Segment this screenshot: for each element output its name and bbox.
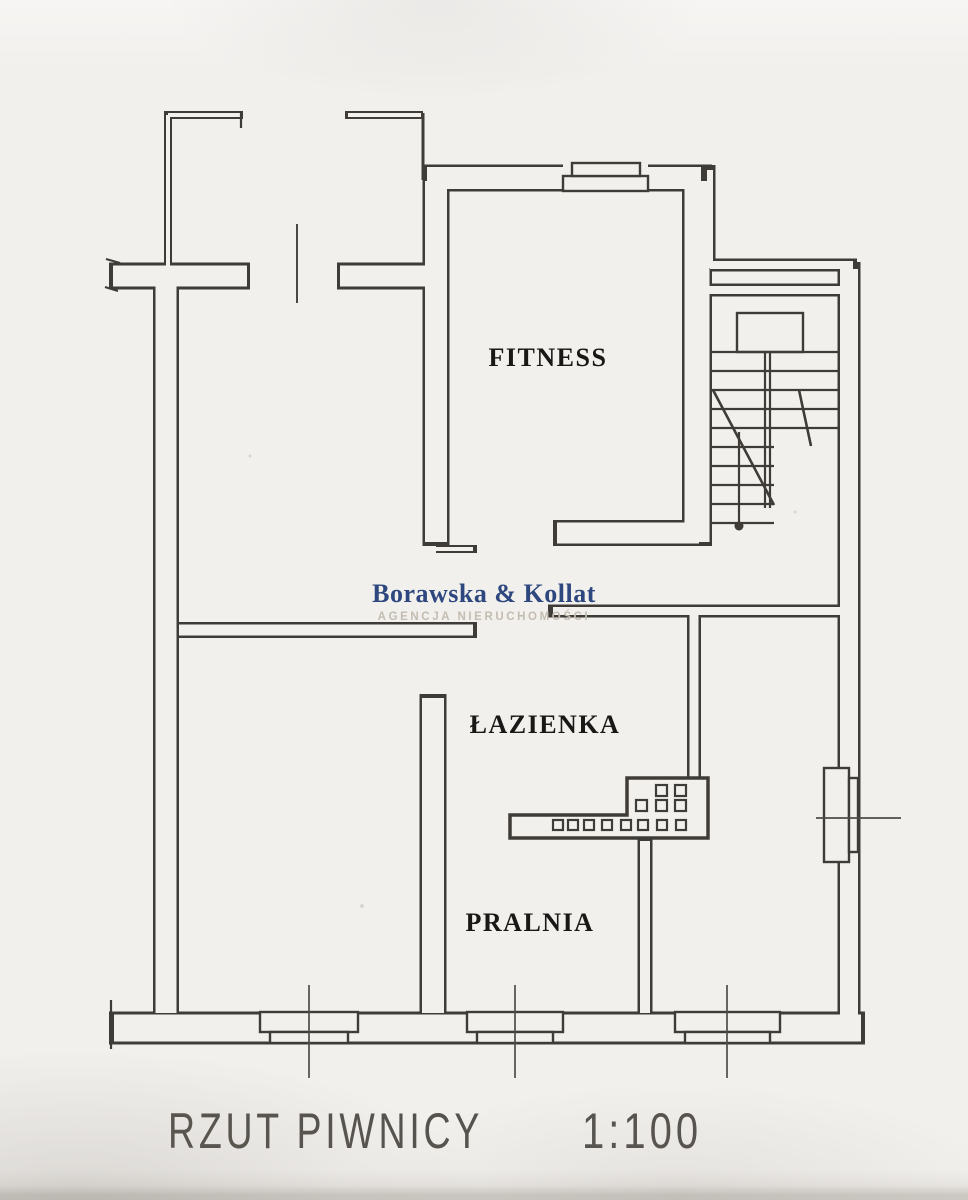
watermark-tagline: AGENCJA NIERUCHOMOŚCI bbox=[378, 610, 591, 623]
walls-cavity-layer bbox=[113, 115, 861, 1036]
room-label-fitness: FITNESS bbox=[489, 343, 608, 372]
plan-title: RZUT PIWNICY bbox=[168, 1104, 483, 1159]
room-label-laundry: PRALNIA bbox=[466, 908, 595, 937]
scanned-floor-plan-page: FITNESS ŁAZIENKA PRALNIA Borawska & Koll… bbox=[0, 0, 968, 1200]
walls-outline-layer bbox=[109, 111, 865, 1041]
watermark-brand: Borawska & Kollat bbox=[372, 579, 596, 608]
staircase bbox=[712, 313, 840, 531]
floor-plan-drawing: FITNESS ŁAZIENKA PRALNIA Borawska & Koll… bbox=[0, 0, 968, 1200]
room-label-bathroom: ŁAZIENKA bbox=[470, 710, 621, 739]
chimney-flue-block bbox=[510, 778, 708, 838]
plan-scale: 1:100 bbox=[582, 1103, 702, 1159]
